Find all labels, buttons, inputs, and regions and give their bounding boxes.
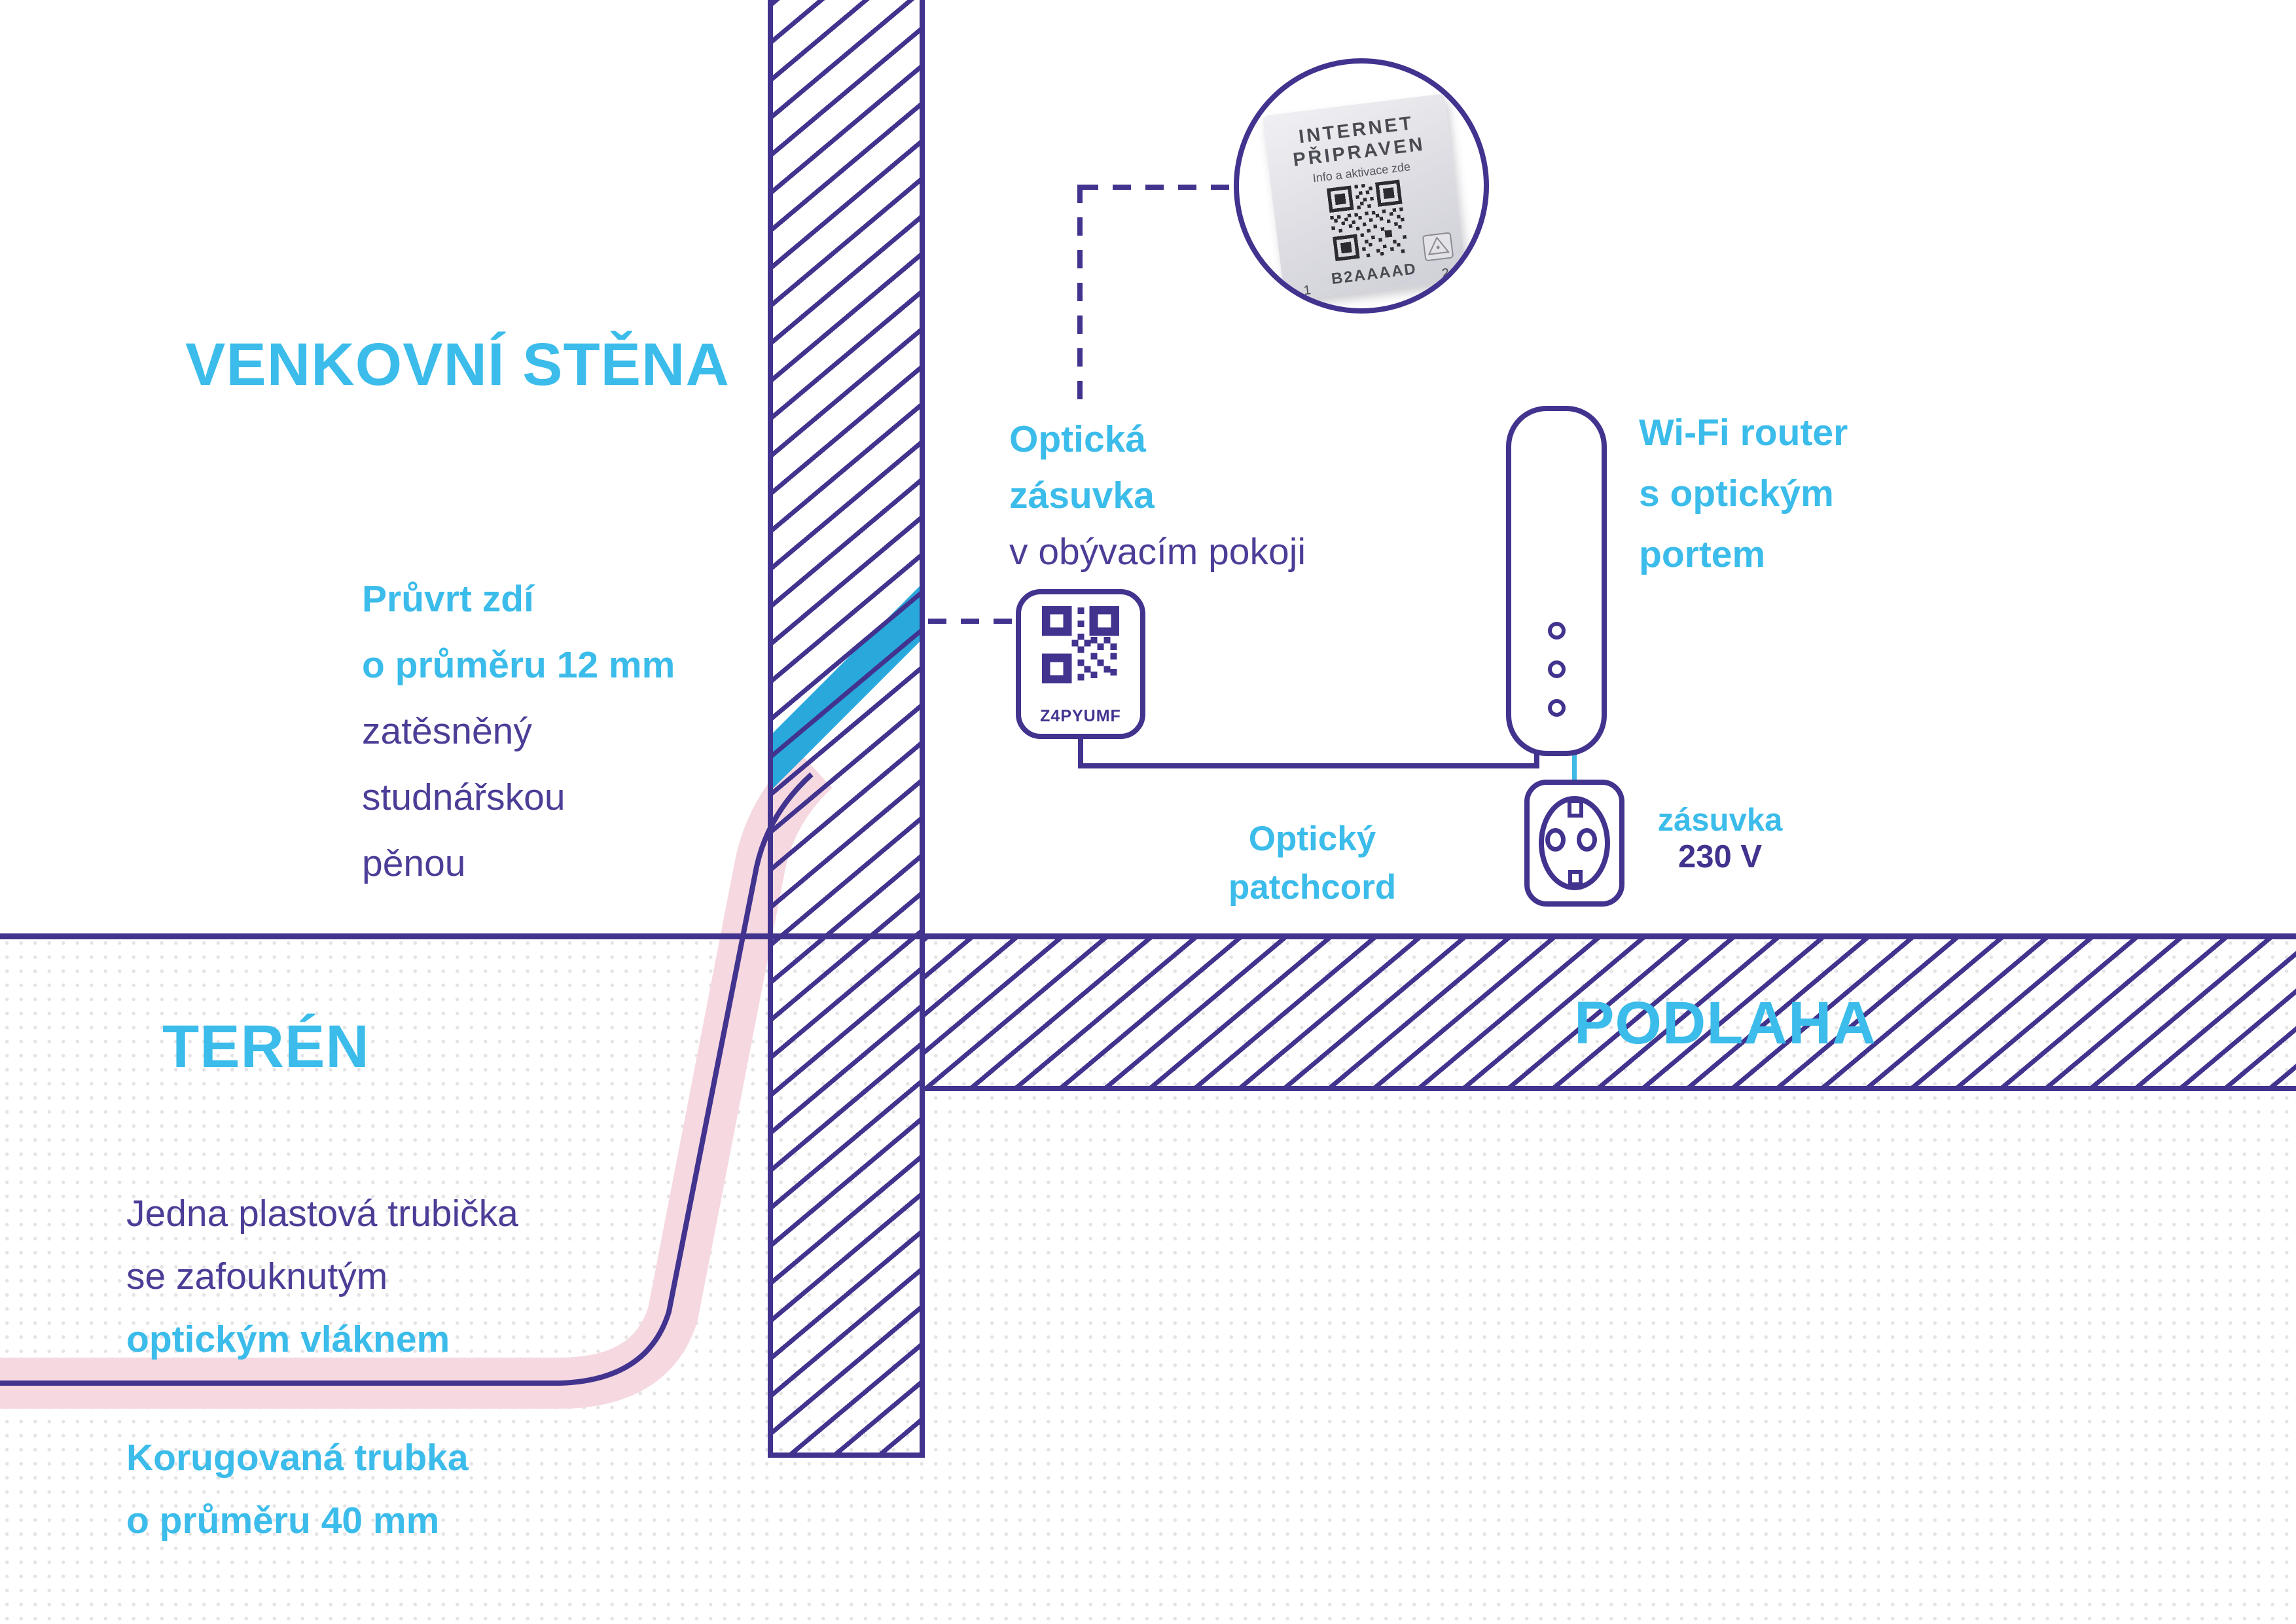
drill-label-line4: studnářskou: [362, 777, 565, 819]
terrain-line: [0, 933, 2296, 939]
router-label-line2: s optickým: [1639, 473, 1834, 515]
dashed-connector-to-photo-v: [1077, 185, 1083, 414]
power-cord-line: [1572, 753, 1577, 782]
tube-label-line2: se zafouknutým: [126, 1256, 387, 1298]
drill-label-line1: Průvrt zdí: [362, 579, 534, 621]
conduit-label-line2: o průměru 40 mm: [126, 1500, 439, 1542]
router-label-line1: Wi-Fi router: [1639, 412, 1848, 454]
installation-diagram: INTERNET PŘIPRAVEN Info a aktivace zde: [0, 0, 2296, 1624]
socket-qr-code-icon: [1021, 606, 1140, 687]
tube-label-line1: Jedna plastová trubička: [126, 1193, 518, 1235]
title-floor: PODLAHA: [1574, 990, 1876, 1057]
wall-hatch-texture: [773, 0, 920, 1453]
title-terrain: TERÉN: [162, 1013, 370, 1081]
socket-label-line1: Optická: [1009, 419, 1146, 461]
wifi-router: [1506, 406, 1607, 756]
tube-label-line3: optickým vláknem: [126, 1319, 450, 1361]
router-led-icon: [1548, 699, 1566, 717]
outlet-ground-notch-bottom: [1568, 870, 1583, 886]
outlet-label-line1: zásuvka: [1636, 803, 1804, 839]
patchcord-label-line2: patchcord: [1211, 868, 1414, 907]
outlet-ground-notch-top: [1568, 799, 1583, 818]
dashed-connector-to-photo-h: [1080, 185, 1234, 190]
outlet-hole-right: [1577, 828, 1597, 852]
optical-socket-box: Z4PYUMF: [1016, 589, 1145, 739]
outlet-label-line2: 230 V: [1636, 839, 1804, 875]
socket-code-label: Z4PYUMF: [1021, 707, 1140, 726]
router-led-icon: [1548, 622, 1566, 640]
dashed-connector-wall-to-socket: [928, 619, 1016, 624]
title-outdoor-wall: VENKOVNÍ STĚNA: [185, 331, 730, 399]
outlet-hole-left: [1545, 828, 1566, 852]
socket-label-line2: zásuvka: [1009, 475, 1155, 517]
router-label-line3: portem: [1639, 534, 1765, 576]
device-code-label: B2AAAAD: [1331, 260, 1418, 288]
drill-label-line3: zatěsněný: [362, 711, 532, 753]
drill-label-line5: pěnou: [362, 843, 466, 885]
internet-ready-socket-photo: INTERNET PŘIPRAVEN Info a aktivace zde: [1263, 94, 1467, 301]
outdoor-wall-section: [768, 0, 925, 1458]
router-led-icon: [1548, 660, 1566, 678]
drill-label-line2: o průměru 12 mm: [362, 645, 675, 687]
patchcord-label-line1: Optický: [1211, 820, 1414, 858]
conduit-label-line1: Korugovaná trubka: [126, 1437, 469, 1479]
optical-patchcord-line: [1078, 739, 1539, 768]
socket-label-line3: v obývacím pokoji: [1009, 532, 1306, 573]
photo-callout-circle: INTERNET PŘIPRAVEN Info a aktivace zde: [1234, 58, 1489, 314]
corrugated-conduit-graphic: [0, 0, 2296, 1624]
power-outlet-icon: [1524, 780, 1624, 907]
